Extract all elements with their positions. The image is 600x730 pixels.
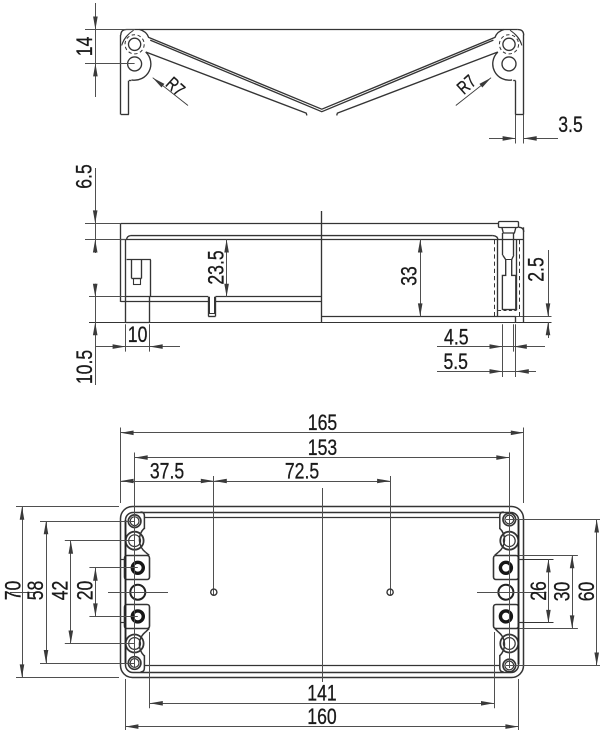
svg-text:20: 20	[73, 581, 98, 601]
svg-text:4.5: 4.5	[444, 325, 469, 350]
svg-text:14: 14	[72, 37, 97, 57]
svg-text:10.5: 10.5	[72, 350, 97, 384]
svg-text:153: 153	[308, 435, 337, 460]
svg-text:23.5: 23.5	[204, 250, 229, 284]
svg-text:72.5: 72.5	[285, 458, 319, 483]
svg-text:30: 30	[549, 582, 574, 602]
svg-text:141: 141	[307, 681, 336, 706]
svg-text:58: 58	[23, 581, 48, 601]
svg-text:70: 70	[1, 581, 26, 601]
svg-text:37.5: 37.5	[150, 458, 184, 483]
svg-text:5.5: 5.5	[443, 349, 468, 374]
svg-text:2.5: 2.5	[524, 257, 549, 282]
svg-text:10: 10	[128, 322, 148, 347]
svg-text:60: 60	[574, 582, 599, 602]
svg-text:6.5: 6.5	[71, 164, 96, 189]
svg-text:26: 26	[526, 581, 551, 601]
svg-text:33: 33	[397, 266, 422, 286]
svg-text:160: 160	[307, 704, 336, 729]
svg-text:165: 165	[308, 410, 337, 435]
svg-text:42: 42	[48, 581, 73, 601]
svg-text:3.5: 3.5	[558, 112, 583, 137]
